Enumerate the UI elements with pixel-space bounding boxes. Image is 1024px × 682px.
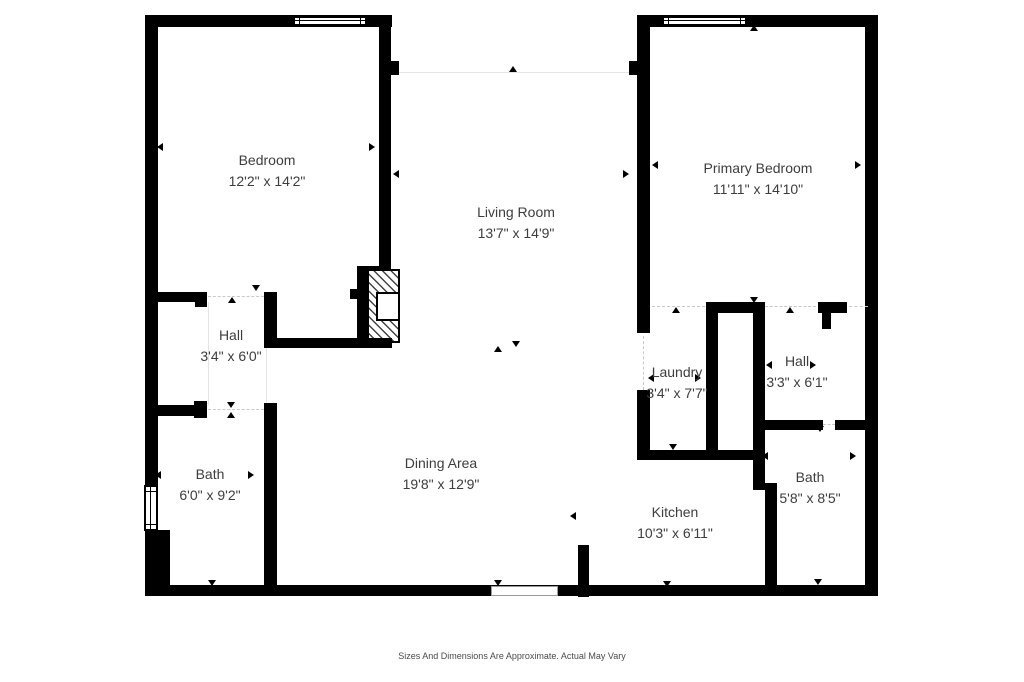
dimension-tick: [816, 426, 824, 432]
bottom-entry-opening: [491, 586, 558, 596]
room-dims: 12'2" x 14'2": [229, 171, 306, 192]
window-divider: [668, 18, 669, 24]
room-label-bedroom: Bedroom 12'2" x 14'2": [229, 150, 306, 192]
floor-plan: Bedroom 12'2" x 14'2" Primary Bedroom 11…: [0, 0, 1024, 682]
dimension-tick: [227, 402, 235, 408]
dimension-tick: [663, 581, 671, 587]
room-label-primary-bedroom: Primary Bedroom 11'11" x 14'10": [704, 158, 813, 200]
dimension-tick: [672, 307, 680, 313]
room-name: Bedroom: [229, 150, 306, 171]
primary-bottom-wall-b: [818, 302, 847, 313]
dimension-tick: [494, 346, 502, 352]
dimension-tick: [855, 161, 861, 169]
dimension-tick: [227, 412, 235, 418]
dimension-tick: [850, 452, 856, 460]
dimension-tick: [369, 143, 375, 151]
fireplace-firebox: [376, 292, 400, 321]
dimension-tick: [750, 297, 758, 303]
room-name: Bath: [779, 467, 840, 488]
room-name: Dining Area: [403, 453, 480, 474]
room-name: Laundry: [646, 362, 707, 383]
room-dims: 19'8" x 12'9": [403, 474, 480, 495]
room-name: Hall: [200, 325, 261, 346]
room-dims: 13'7" x 14'9": [477, 223, 555, 244]
room-dims: 5'8" x 8'5": [779, 488, 840, 509]
room-dims: 3'4" x 6'0": [200, 346, 261, 367]
dimension-tick: [157, 143, 163, 151]
window-divider: [146, 524, 156, 525]
dimension-tick: [252, 285, 260, 291]
dimension-tick: [208, 580, 216, 586]
hall-right-left-wall: [753, 302, 765, 490]
window-divider: [146, 491, 156, 492]
room-dims: 3'3" x 6'1": [766, 372, 827, 393]
room-dims: 11'11" x 14'10": [704, 179, 813, 200]
bath-left-window: [144, 485, 158, 531]
hall-left-top-door: [208, 296, 264, 297]
dimension-tick: [494, 580, 502, 586]
laundry-right-wall: [706, 302, 718, 460]
dimension-tick: [155, 471, 161, 479]
dimension-tick: [393, 170, 399, 178]
dimension-tick: [762, 452, 768, 460]
room-label-dining-area: Dining Area 19'8" x 12'9": [403, 453, 480, 495]
dimension-tick: [814, 579, 822, 585]
hall-left-bottom-door: [208, 409, 264, 410]
window-divider: [740, 18, 741, 24]
room-label-living-room: Living Room 13'7" x 14'9": [477, 202, 555, 244]
bath-right-left-wall: [765, 483, 777, 595]
dimension-tick: [786, 307, 794, 313]
dimension-tick: [669, 444, 677, 450]
hall-dining-divider-wall: [264, 338, 392, 348]
room-name: Bath: [179, 464, 240, 485]
window-divider: [360, 18, 361, 24]
disclaimer-text: Sizes And Dimensions Are Approximate. Ac…: [398, 651, 625, 661]
primary-window: [662, 16, 747, 26]
kitchen-stub-wall: [578, 545, 589, 597]
window-divider: [299, 18, 300, 24]
bath-left-top-jamb: [194, 401, 207, 418]
room-dims: 3'4" x 7'7": [646, 383, 707, 404]
exterior-wall-right: [865, 15, 878, 595]
dimension-tick: [512, 341, 520, 347]
room-dims: 10'3" x 6'11": [637, 523, 713, 544]
room-name: Hall: [766, 351, 827, 372]
hall-left-top-jamb: [195, 292, 207, 307]
room-label-kitchen: Kitchen 10'3" x 6'11": [637, 502, 713, 544]
bath-left-right-wall: [264, 403, 277, 585]
hall-right-bottom-wall-a: [753, 420, 823, 430]
dimension-tick: [570, 512, 576, 520]
dimension-tick: [248, 471, 254, 479]
dimension-tick: [228, 297, 236, 303]
dimension-tick: [623, 170, 629, 178]
bath-right-door: [823, 424, 835, 425]
bedroom-right-wall: [379, 15, 391, 268]
dimension-tick: [750, 25, 758, 31]
room-name: Living Room: [477, 202, 555, 223]
bedroom-window: [293, 16, 367, 26]
window-muntin: [295, 20, 365, 21]
dimension-tick: [379, 25, 387, 31]
dimension-tick: [652, 161, 658, 169]
room-label-bath-right: Bath 5'8" x 8'5": [779, 467, 840, 509]
dimension-tick: [660, 453, 668, 459]
window-muntin: [664, 20, 745, 21]
living-room-jamb-left: [390, 61, 399, 75]
fireplace-left-wall: [357, 266, 367, 348]
primary-bottom-wall-b-jamb: [822, 313, 831, 329]
room-dims: 6'0" x 9'2": [179, 485, 240, 506]
laundry-door: [643, 336, 644, 390]
room-label-hall-left: Hall 3'4" x 6'0": [200, 325, 261, 367]
laundry-bottom-wall: [637, 450, 765, 460]
primary-left-wall-upper: [637, 15, 650, 333]
room-name: Kitchen: [637, 502, 713, 523]
room-label-hall-right: Hall 3'3" x 6'1": [766, 351, 827, 393]
corner-wall-block: [145, 530, 170, 587]
living-room-open-boundary: [399, 72, 629, 73]
room-name: Primary Bedroom: [704, 158, 813, 179]
room-label-bath-left: Bath 6'0" x 9'2": [179, 464, 240, 506]
room-label-laundry: Laundry 3'4" x 7'7": [646, 362, 707, 404]
fireplace-side-notch: [350, 289, 357, 299]
dimension-tick: [509, 66, 517, 72]
primary-door-closet: [849, 306, 868, 307]
hall-left-open-line-b: [266, 348, 267, 405]
window-muntin: [150, 487, 151, 529]
hall-right-bottom-wall-b: [835, 420, 866, 430]
